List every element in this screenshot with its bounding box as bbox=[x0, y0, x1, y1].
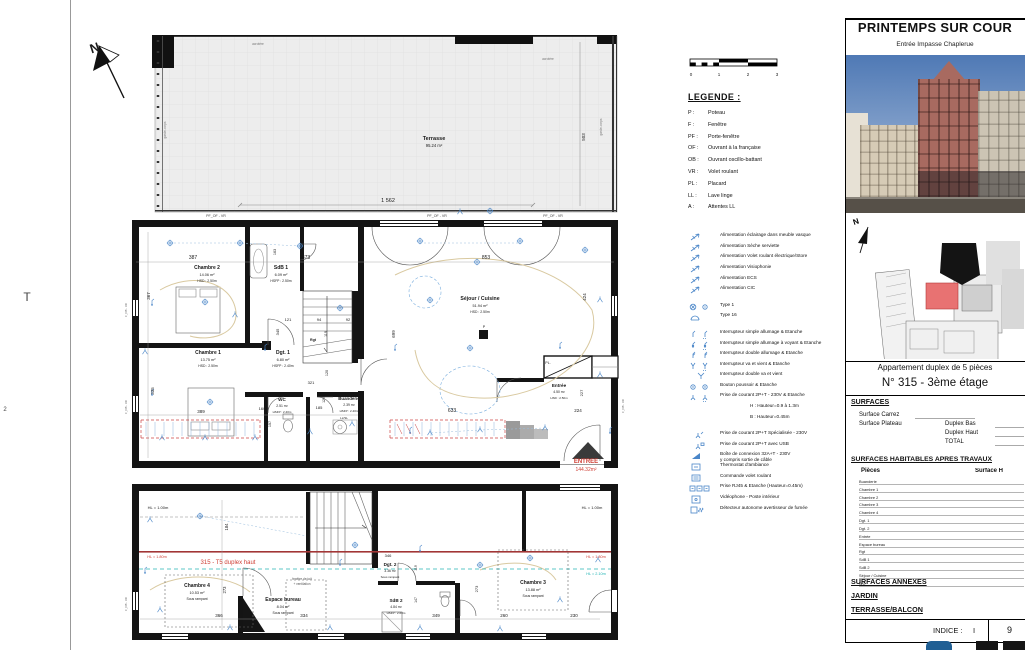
plan-label: HSFP : 2.60m bbox=[387, 611, 406, 615]
abbr-key: LL : bbox=[688, 193, 708, 199]
project-title: PRINTEMPS SUR COUR bbox=[845, 20, 1025, 35]
abbr-key: PL : bbox=[688, 181, 708, 187]
plan-label: 387 bbox=[189, 255, 198, 261]
plan-label: 1 bbox=[718, 72, 721, 77]
prise-icon bbox=[688, 392, 714, 402]
indice-row: INDICE : I 9 bbox=[845, 619, 1025, 641]
room-name: Chambre 3 bbox=[859, 502, 939, 507]
plan-label: 260 bbox=[500, 613, 508, 618]
abbr-key: OF : bbox=[688, 145, 708, 151]
usb-icon bbox=[688, 441, 714, 451]
fumee-icon bbox=[688, 505, 714, 515]
apartment-number: N° 315 - 3ème étage bbox=[845, 377, 1025, 389]
arrow-icon bbox=[688, 232, 714, 242]
abbr-value: Lave linge bbox=[708, 193, 733, 199]
abbr-key: P : bbox=[688, 110, 708, 116]
legend-item: Bouton poussoir & Etanche bbox=[688, 382, 840, 393]
room-name: Chambre 1 bbox=[859, 487, 939, 492]
legend-item: Commande volet roulant bbox=[688, 473, 840, 484]
legend-item-label: Interrupteur double va et vient bbox=[720, 371, 782, 376]
legend-item-label: H : Hauteur=0.9 à 1.3m bbox=[750, 403, 799, 408]
plan-label: 389 bbox=[197, 409, 205, 414]
abbr-value: Ouvrant à la française bbox=[708, 145, 761, 151]
plan-label: PF_OF - VR bbox=[427, 214, 447, 218]
legend-item-label: Interrupteur va et vient & Etanche bbox=[720, 361, 790, 366]
plan-label: 3.36 m² bbox=[384, 569, 396, 573]
plan-sheet: { "sheet": { "stray_t": "T", "stray_2": … bbox=[0, 0, 1025, 650]
legend-abbr-row: A :Attentes LL bbox=[688, 204, 840, 216]
plan-label: 6.09 m² bbox=[275, 273, 289, 277]
north-letter: N bbox=[88, 39, 102, 56]
arrow-icon bbox=[688, 253, 714, 263]
plan-label: 120 bbox=[325, 370, 329, 376]
plan-label: 853 bbox=[482, 255, 491, 261]
surface-row: Rgt bbox=[859, 548, 1024, 556]
legend-abbr-row: P :Poteau bbox=[688, 110, 840, 122]
arrow-icon bbox=[688, 275, 714, 285]
plan-label: 367 bbox=[146, 292, 151, 300]
plan-label: 14.06 m² bbox=[200, 273, 216, 277]
legend-item: Interrupteur double allumage & Etanche bbox=[688, 350, 840, 361]
outlet-symbol bbox=[350, 420, 355, 426]
legend-item-label: Interrupteur double allumage & Etanche bbox=[720, 350, 803, 355]
apartment-type: Appartement duplex de 5 pièces bbox=[845, 363, 1025, 372]
arrow-icon bbox=[688, 243, 714, 253]
plan-label: SdB 1 bbox=[274, 265, 288, 271]
divider bbox=[845, 361, 1025, 362]
spot-symbol bbox=[427, 297, 433, 303]
plan-label: 10.53 m² bbox=[190, 591, 206, 595]
legend-item: Interrupteur simple allumage à voyant & … bbox=[688, 340, 840, 351]
legend-item: Prise de courant 2P+T Spécialisée - 230V bbox=[688, 430, 840, 441]
legend-abbr-row: OF :Ouvrant à la française bbox=[688, 145, 840, 157]
legend-item: Alimentation éclairage dans meuble vasqu… bbox=[688, 232, 840, 243]
plan-label: 273 bbox=[474, 585, 479, 592]
page-number: 9 bbox=[1007, 625, 1012, 635]
plan-label: 224 bbox=[574, 408, 582, 413]
habitables-heading: SURFACES HABITABLES APRES TRAVAUX bbox=[851, 456, 992, 463]
surface-row: SdB 1 bbox=[859, 555, 1024, 563]
legend-abbr-row: OB :Ouvrant oscillo-battant bbox=[688, 157, 840, 169]
plan-label: acrotère bbox=[252, 42, 264, 46]
boite-icon bbox=[688, 451, 714, 461]
rj45-icon bbox=[688, 483, 714, 493]
plan-label: F_OB - VR bbox=[124, 303, 128, 317]
plan-label: Rgt bbox=[310, 338, 317, 342]
plan-label: 160 bbox=[259, 406, 266, 411]
plan-label: 334 bbox=[300, 613, 308, 618]
outlet-symbol bbox=[418, 624, 423, 630]
surface-plateau-label: Surface Plateau bbox=[859, 421, 902, 427]
legend-item-label: Détecteur autonome avertisseur de fumée bbox=[720, 505, 808, 510]
legend-abbr-row: VR :Volet roulant bbox=[688, 169, 840, 181]
plan-label: F_OB - VR bbox=[124, 597, 128, 611]
vv-icon bbox=[688, 361, 714, 371]
plan-label: 4.84 m² bbox=[390, 605, 402, 609]
plan-label: 699 bbox=[391, 330, 396, 338]
bp-icon bbox=[688, 382, 714, 392]
terrace-plan bbox=[152, 35, 617, 212]
plan-label: Sous rampant bbox=[186, 597, 207, 601]
plan-label: HSD : 2.50m bbox=[550, 396, 568, 400]
legend-item-label: B : Hauteur=0.45m bbox=[750, 414, 789, 419]
spot-symbol bbox=[477, 562, 483, 568]
annexes-heading: SURFACES ANNEXES bbox=[851, 577, 927, 586]
legend-item-label: Thermostat d'ambiance bbox=[720, 462, 769, 467]
value-line bbox=[995, 436, 1024, 437]
room-name: Entrée bbox=[859, 534, 939, 539]
outlet-symbol bbox=[598, 296, 603, 302]
room-name: Rgt bbox=[859, 549, 939, 554]
plan-label: garde-corps bbox=[163, 121, 167, 138]
plan-label: 633 bbox=[448, 408, 457, 414]
duplex-haut-label: Duplex Haut bbox=[945, 430, 978, 436]
site-north-arrow-icon: N bbox=[852, 216, 868, 253]
legend-item-label: Commande volet roulant bbox=[720, 473, 771, 478]
legend-abbr-row: F :Fenêtre bbox=[688, 122, 840, 134]
plan-label: 6.80 m² bbox=[277, 358, 291, 362]
surface-row: Chambre 3 bbox=[859, 501, 1024, 509]
plan-label: 345 bbox=[275, 328, 280, 335]
legend-item: Vidéophone - Poste intérieur bbox=[688, 494, 840, 505]
legend-item: Prise de courant 2P+T avec USB bbox=[688, 441, 840, 452]
abbr-value: Ouvrant oscillo-battant bbox=[708, 157, 762, 163]
outlet-symbol bbox=[158, 606, 163, 612]
plan-label: Espace bureau bbox=[265, 597, 301, 603]
plan-label: garde-corps bbox=[599, 118, 603, 135]
plan-label: 4.50 m² bbox=[553, 390, 565, 394]
plan-label: 3 bbox=[776, 72, 779, 77]
plan-label: Sous rampant bbox=[522, 594, 543, 598]
abbr-value: Fenêtre bbox=[708, 122, 727, 128]
legend-abbr-row: LL :Lave linge bbox=[688, 193, 840, 205]
legend-item-label: Bouton poussoir & Etanche bbox=[720, 382, 777, 387]
value-line bbox=[995, 445, 1024, 446]
int1-icon bbox=[688, 329, 714, 339]
spot-symbol bbox=[467, 345, 473, 351]
legend: LEGENDE : P :PoteauF :FenêtrePF :Porte-f… bbox=[688, 92, 840, 515]
type16-icon bbox=[688, 312, 714, 322]
divider bbox=[988, 620, 989, 641]
outlet-symbol bbox=[428, 429, 433, 435]
switch-symbol bbox=[419, 545, 422, 552]
plan-label: 119 bbox=[414, 565, 418, 571]
legend-item: Type 16 bbox=[688, 312, 840, 323]
outlet-symbol bbox=[478, 426, 483, 432]
video-icon bbox=[688, 494, 714, 504]
plan-label: HSFP : 2.40m bbox=[272, 364, 293, 368]
plan-label: 121 bbox=[285, 317, 292, 322]
switch-symbol bbox=[409, 427, 412, 434]
plan-label: 373 bbox=[302, 255, 311, 261]
room-name: Espace bureau bbox=[859, 542, 939, 547]
legend-item: Prise RJ45 & Etanche (Hauteur=0.45m) bbox=[688, 483, 840, 494]
legend-item: Interrupteur va et vient & Etanche bbox=[688, 361, 840, 372]
plan-label: 346 bbox=[385, 553, 392, 558]
legend-item-label: Prise de courant 2P+T Spécialisée - 230V bbox=[720, 430, 807, 435]
legend-abbr-row: PL :Placard bbox=[688, 181, 840, 193]
plan-label: HSFP : 2.50m bbox=[270, 279, 291, 283]
room-name: Dgt. 1 bbox=[859, 518, 939, 523]
plan-label: HSFP : 2.40m bbox=[340, 409, 359, 413]
plan-label: 184 bbox=[224, 523, 229, 531]
plan-label: 94 bbox=[317, 317, 322, 322]
legend-item-label: Type 1 bbox=[720, 302, 734, 307]
site-key-plan: N bbox=[846, 213, 1025, 359]
switch-symbol bbox=[394, 344, 397, 351]
outlet-symbol bbox=[143, 348, 148, 354]
abbr-value: Attentes LL bbox=[708, 204, 735, 210]
column-surface: Surface H bbox=[975, 468, 1025, 474]
outlet-symbol bbox=[233, 311, 238, 317]
divider bbox=[845, 395, 1025, 396]
plan-label: T bbox=[23, 290, 31, 304]
plan-label: 129 bbox=[322, 397, 326, 403]
plan-label: Dgt. 2 bbox=[384, 562, 397, 567]
plan-label: 13.88 m² bbox=[526, 588, 542, 592]
switch-symbol bbox=[144, 567, 147, 574]
plan-label: 230 bbox=[570, 613, 578, 618]
abbr-key: OB : bbox=[688, 157, 708, 163]
spot-symbol bbox=[167, 240, 173, 246]
plan-label: 321 bbox=[308, 380, 315, 385]
legend-item: Boîte de connexion 32A+T - 230Vy compris… bbox=[688, 451, 840, 462]
plan-label: 185 bbox=[316, 405, 323, 410]
value-line bbox=[915, 418, 975, 419]
plan-label: Chambre 1 bbox=[195, 350, 221, 356]
terrasse-heading: TERRASSE/BALCON bbox=[851, 605, 923, 614]
abbr-key: F : bbox=[688, 122, 708, 128]
legend-item: Thermostat d'ambiance bbox=[688, 462, 840, 473]
priseS-icon bbox=[688, 430, 714, 440]
value-line bbox=[995, 427, 1024, 428]
legend-item: Alimentation CIC bbox=[688, 285, 840, 296]
plan-label: SdB 2 bbox=[389, 598, 402, 603]
plan-label: fenêtre de toit bbox=[292, 577, 312, 581]
plan-label: 273 bbox=[222, 586, 227, 594]
legend-item-label: Prise RJ45 & Etanche (Hauteur=0.45m) bbox=[720, 483, 803, 488]
legend-item: Alimentation Visiophonie bbox=[688, 264, 840, 275]
plan-label: HSD : 2.50m bbox=[198, 364, 218, 368]
legend-item-label: Alimentation ECS bbox=[720, 275, 757, 280]
title-block: PRINTEMPS SUR COUR Entrée Impasse Chaple… bbox=[845, 0, 1025, 650]
logo-black-icon bbox=[1003, 641, 1025, 650]
plan-label: 366 bbox=[215, 613, 223, 618]
plan-label: 2 bbox=[747, 72, 750, 77]
column-pieces: Pièces bbox=[861, 468, 880, 474]
abbr-value: Volet roulant bbox=[708, 169, 738, 175]
arrow-icon bbox=[688, 264, 714, 274]
outlet-symbol bbox=[228, 624, 233, 630]
room-name: SdB 2 bbox=[859, 565, 939, 570]
int1v-icon bbox=[688, 340, 714, 350]
plan-label: 2 bbox=[3, 407, 7, 413]
surface-carrez-label: Surface Carrez bbox=[859, 412, 899, 418]
legend-item: Alimentation Volet roulant électrique/St… bbox=[688, 253, 840, 264]
surface-row: Espace bureau bbox=[859, 540, 1024, 548]
plan-label: HL = 1.00m bbox=[582, 505, 603, 510]
thermo-icon bbox=[688, 462, 714, 472]
spot-symbol bbox=[237, 240, 243, 246]
plan-label: Chambre 3 bbox=[520, 580, 546, 586]
spot-symbol bbox=[527, 555, 533, 561]
int2-icon bbox=[688, 350, 714, 360]
plan-label: 92 bbox=[346, 317, 351, 322]
legend-item-label: Interrupteur simple allumage & Etanche bbox=[720, 329, 802, 334]
legend-electrical: Alimentation éclairage dans meuble vasqu… bbox=[688, 232, 840, 515]
plan-label: Entrée bbox=[552, 383, 567, 388]
legend-item: Interrupteur simple allumage & Etanche bbox=[688, 329, 840, 340]
total-label: TOTAL bbox=[945, 439, 964, 445]
plan-label: LL/SL bbox=[340, 416, 348, 420]
photo-gable bbox=[932, 61, 966, 81]
site-highlighted-unit bbox=[926, 283, 958, 309]
photo-building-left bbox=[860, 125, 922, 197]
legend-item-label: Alimentation Volet roulant électrique/St… bbox=[720, 253, 807, 258]
unit-label: 315 - T5 duplex haut bbox=[201, 560, 256, 566]
legend-item: H : Hauteur=0.9 à 1.3m bbox=[688, 403, 840, 414]
outlet-symbol bbox=[558, 596, 563, 602]
spot-symbol bbox=[197, 513, 203, 519]
abbr-key: VR : bbox=[688, 169, 708, 175]
abbr-value: Placard bbox=[708, 181, 726, 187]
plan-label: 227 bbox=[579, 389, 584, 396]
plan-label: HSD : 2.50m bbox=[470, 310, 490, 314]
logo-blue-icon bbox=[926, 641, 952, 650]
photo-storefronts bbox=[918, 171, 1025, 197]
room-name: SdB 1 bbox=[859, 557, 939, 562]
spot-symbol bbox=[417, 238, 423, 244]
type1-icon bbox=[688, 302, 714, 312]
plan-label: + ventilation bbox=[293, 582, 310, 586]
surface-row: Chambre 1 bbox=[859, 485, 1024, 493]
switch-symbol bbox=[559, 342, 562, 349]
plan-label: HL = 1.80m bbox=[586, 555, 606, 559]
surface-row: Dgt. 2 bbox=[859, 524, 1024, 532]
outlet-symbol bbox=[328, 624, 333, 630]
plan-label: Buanderie bbox=[338, 396, 360, 401]
surface-row: Dgt. 1 bbox=[859, 516, 1024, 524]
entry-arrow-icon bbox=[572, 442, 604, 459]
legend-item: Alimentation ECS bbox=[688, 275, 840, 286]
plan-label: Séjour / Cuisine bbox=[460, 296, 499, 302]
plan-label: PL. bbox=[545, 361, 550, 365]
duplex-bas-label: Duplex Bas bbox=[945, 421, 976, 427]
logo-black-icon bbox=[976, 641, 998, 650]
lower-fixtures bbox=[176, 244, 618, 439]
legend-title: LEGENDE : bbox=[688, 92, 840, 102]
plan-label: PF_OF - VR bbox=[206, 214, 226, 218]
plan-label: Chambre 4 bbox=[184, 583, 210, 589]
room-name: Chambre 4 bbox=[859, 510, 939, 515]
legend-abbreviations: P :PoteauF :FenêtrePF :Porte-fenêtreOF :… bbox=[688, 110, 840, 216]
legend-item-label: Vidéophone - Poste intérieur bbox=[720, 494, 779, 499]
abbr-value: Porte-fenêtre bbox=[708, 134, 739, 140]
plan-label: 2.39 m² bbox=[343, 403, 355, 407]
rooms-table: BuanderieChambre 1Chambre 2Chambre 3Cham… bbox=[859, 477, 1024, 587]
room-name: Chambre 2 bbox=[859, 495, 939, 500]
legend-item: B : Hauteur=0.45m bbox=[688, 414, 840, 425]
plan-label: HL = 1.80m bbox=[147, 555, 167, 559]
plan-label: F_OB - VR bbox=[621, 399, 625, 413]
logo-partial bbox=[920, 641, 1025, 650]
plan-label: 335 bbox=[150, 387, 155, 395]
surface-row: Buanderie bbox=[859, 477, 1024, 485]
jardin-heading: JARDIN bbox=[851, 591, 878, 600]
legend-item-label: Alimentation CIC bbox=[720, 285, 755, 290]
plan-label: PF_OF - VR bbox=[543, 214, 563, 218]
entry-label: ENTREE bbox=[574, 459, 598, 465]
legend-item: Type 1 bbox=[688, 302, 840, 313]
cvr-icon bbox=[688, 473, 714, 483]
plan-label: Chambre 2 bbox=[194, 265, 220, 271]
photo-street bbox=[846, 197, 1025, 213]
plan-label: 424 bbox=[582, 293, 587, 301]
plan-label: 2.51 m² bbox=[276, 404, 288, 408]
legend-item-label: Alimentation Visiophonie bbox=[720, 264, 771, 269]
plan-label: Sous rampant bbox=[381, 575, 400, 579]
plan-label: 8.04 m² bbox=[277, 605, 291, 609]
legend-item-label: Type 16 bbox=[720, 312, 737, 317]
plan-label: 1 562 bbox=[381, 198, 395, 204]
plan-label: F_OB - VR bbox=[124, 400, 128, 414]
dvv-icon bbox=[688, 371, 714, 381]
abbr-key: PF : bbox=[688, 134, 708, 140]
indice-label: INDICE : bbox=[933, 626, 963, 635]
arrow-icon bbox=[688, 285, 714, 295]
plan-label: HL = 1.00m bbox=[148, 505, 169, 510]
outlet-symbol bbox=[253, 434, 258, 440]
surface-row: SdB 2 bbox=[859, 563, 1024, 571]
site-north-letter: N bbox=[852, 216, 860, 226]
plan-label: Terrasse bbox=[423, 136, 446, 142]
plan-label: HSD : 2.50m bbox=[197, 279, 217, 283]
plan-label: 119 bbox=[324, 331, 328, 337]
legend-item-label: Alimentation Sèche serviette bbox=[720, 243, 779, 248]
surface-row: Entrée bbox=[859, 532, 1024, 540]
room-name: Dgt. 2 bbox=[859, 526, 939, 531]
plan-label: 349 bbox=[432, 613, 440, 618]
switch-symbol bbox=[151, 299, 154, 306]
plan-label: 157 bbox=[268, 421, 272, 427]
legend-item: Détecteur autonome avertisseur de fumée bbox=[688, 505, 840, 516]
surface-row: Chambre 2 bbox=[859, 493, 1024, 501]
abbr-value: Poteau bbox=[708, 110, 725, 116]
indice-value: I bbox=[973, 626, 975, 635]
plan-label: 0 bbox=[690, 72, 693, 77]
plan-label: 147 bbox=[414, 597, 418, 603]
abbr-key: A : bbox=[688, 204, 708, 210]
plan-label: 95.24 m² bbox=[426, 143, 443, 148]
legend-item-label: Interrupteur simple allumage à voyant & … bbox=[720, 340, 821, 345]
surface-row: Chambre 4 bbox=[859, 508, 1024, 516]
legend-abbr-row: PF :Porte-fenêtre bbox=[688, 134, 840, 146]
plan-label: Sous rampant bbox=[272, 611, 293, 615]
scale-bar bbox=[690, 59, 777, 66]
plan-label: P bbox=[483, 325, 486, 329]
plan-label: 163 bbox=[273, 249, 277, 255]
legend-item: Prise de courant 2P+T - 230V & Etanche bbox=[688, 392, 840, 403]
spot-symbol bbox=[582, 247, 588, 253]
plan-label: HL = 2.10m bbox=[586, 572, 606, 576]
plan-label: 144.32m² bbox=[575, 467, 596, 473]
plan-label: HSFP : 2.40m bbox=[273, 410, 292, 414]
plan-label: 503 bbox=[581, 133, 586, 141]
plan-label: 51.94 m² bbox=[473, 304, 489, 308]
legend-item: Alimentation Sèche serviette bbox=[688, 243, 840, 254]
room-name: Buanderie bbox=[859, 479, 939, 484]
legend-item-label: Prise de courant 2P+T avec USB bbox=[720, 441, 789, 446]
